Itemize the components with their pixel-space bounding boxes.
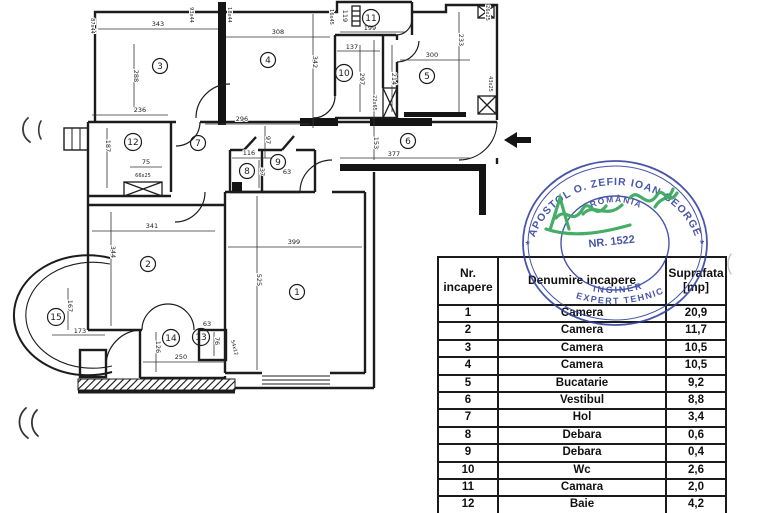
table-row: 7Hol3,4	[438, 409, 726, 426]
dimension-label: 63	[283, 168, 291, 176]
room-number-label: 14	[163, 330, 180, 347]
svg-text:10: 10	[338, 69, 350, 79]
room-area-cell: 10,5	[666, 340, 726, 357]
dimension-label: 187	[104, 140, 112, 152]
room-area-cell: 8,8	[666, 392, 726, 409]
room-number-label: 9	[271, 155, 286, 170]
room-number-label: 8	[240, 164, 255, 179]
table-header-row: Nr. incapere Denumire incapere Suprafata…	[438, 257, 726, 305]
dimension-label: 308	[272, 28, 284, 36]
room-number-label: 3	[153, 59, 168, 74]
scanned-floorplan-page: Nr. incapere Denumire incapere Suprafata…	[0, 0, 770, 513]
room-number-cell: 2	[438, 322, 498, 339]
dimension-label: 54x12	[229, 339, 239, 356]
room-number-cell: 5	[438, 375, 498, 392]
header-suprafata-line2: [mp]	[683, 280, 709, 294]
table-row: 1Camera20,9	[438, 305, 726, 322]
svg-text:11: 11	[365, 14, 376, 24]
svg-text:13: 13	[195, 333, 206, 343]
room-number-label: 10	[336, 65, 353, 82]
room-number-label: 11	[363, 10, 380, 27]
svg-text:2: 2	[145, 260, 151, 270]
room-number-label: 4	[261, 53, 276, 68]
room-number-cell: 11	[438, 479, 498, 496]
room-name-cell: Wc	[498, 462, 666, 479]
room-number-cell: 10	[438, 462, 498, 479]
room-area-cell: 11,7	[666, 322, 726, 339]
room-area-cell: 2,0	[666, 479, 726, 496]
room-table-body: 1Camera20,92Camera11,73Camera10,54Camera…	[438, 305, 726, 513]
stamp-number-text: NR. 1522	[588, 234, 635, 251]
header-nr-line2: incapere	[443, 280, 492, 294]
room-number-cell: 12	[438, 496, 498, 513]
plan-dimension-lines	[52, 12, 470, 372]
room-number-cell: 4	[438, 357, 498, 374]
table-row: 11Camara2,0	[438, 479, 726, 496]
header-denumire: Denumire incapere	[498, 257, 666, 305]
room-area-cell: 4,2	[666, 496, 726, 513]
room-number-cell: 7	[438, 409, 498, 426]
room-area-cell: 0,6	[666, 427, 726, 444]
dimension-label: 119	[341, 10, 349, 22]
room-area-table: Nr. incapere Denumire incapere Suprafata…	[437, 256, 727, 513]
header-suprafata: Suprafata [mp]	[666, 257, 726, 305]
room-number-cell: 1	[438, 305, 498, 322]
header-nr-incapere: Nr. incapere	[438, 257, 498, 305]
dimension-label: 87x44	[89, 18, 95, 34]
stamp-ring-text: * APOSTOL O. ZEFIR IOAN GEORGE *	[524, 176, 707, 247]
room-area-cell: 0,4	[666, 444, 726, 461]
header-denumire-label: Denumire incapere	[528, 273, 636, 287]
dimension-label: 297	[358, 73, 366, 85]
room-name-cell: Camera	[498, 305, 666, 322]
header-nr-line1: Nr.	[460, 266, 476, 280]
svg-text:3: 3	[157, 62, 163, 72]
dimension-label: 399	[288, 238, 300, 246]
dimension-label: 300	[426, 51, 438, 59]
dimension-label: 37	[258, 168, 266, 176]
room-name-cell: Camera	[498, 340, 666, 357]
dimension-label: 233	[457, 34, 465, 46]
table-row: 6Vestibul8,8	[438, 392, 726, 409]
dimension-label: 214	[390, 73, 398, 85]
room-number-label: 6	[401, 134, 416, 149]
room-area-cell: 20,9	[666, 305, 726, 322]
dimension-label: 18x44	[226, 7, 232, 23]
entrance-arrow-icon	[504, 132, 531, 148]
table-row: 9Debara0,4	[438, 444, 726, 461]
room-number-label: 12	[125, 134, 142, 151]
stamp-country-text: ROMÂNIA	[588, 193, 644, 210]
svg-text:12: 12	[127, 138, 138, 148]
dimension-label: 288	[132, 70, 140, 82]
dimension-label: 173	[74, 327, 86, 335]
table-row: 4Camera10,5	[438, 357, 726, 374]
svg-text:8: 8	[244, 167, 250, 177]
svg-text:14: 14	[165, 334, 177, 344]
plan-dimension-labels: 34330828887x4493x4418x4416x4511919913734…	[66, 5, 493, 361]
header-suprafata-line1: Suprafata	[668, 266, 723, 280]
dimension-label: 116	[243, 149, 255, 157]
dimension-label: 341	[146, 222, 158, 230]
svg-text:* APOSTOL O. ZEFIR IOAN GEORGE: * APOSTOL O. ZEFIR IOAN GEORGE *	[524, 176, 707, 247]
room-number-cell: 6	[438, 392, 498, 409]
room-area-cell: 3,4	[666, 409, 726, 426]
dimension-label: 377	[388, 150, 400, 158]
room-number-label: 2	[141, 257, 156, 272]
dimension-label: 93x44	[188, 7, 194, 23]
svg-text:15: 15	[50, 313, 61, 323]
svg-text:7: 7	[195, 139, 201, 149]
room-number-cell: 3	[438, 340, 498, 357]
dimension-label: 342	[311, 56, 319, 68]
svg-text:9: 9	[275, 158, 281, 168]
dimension-label: 167	[66, 300, 74, 312]
room-area-cell: 9,2	[666, 375, 726, 392]
dimension-label: 63	[203, 320, 211, 328]
dimension-label: 236	[134, 106, 146, 114]
svg-text:4: 4	[265, 56, 271, 66]
room-name-cell: Debara	[498, 444, 666, 461]
dimension-label: 43x25	[487, 76, 493, 92]
room-name-cell: Debara	[498, 427, 666, 444]
room-area-cell: 2,6	[666, 462, 726, 479]
room-number-label: 1	[290, 285, 305, 300]
svg-text:1: 1	[294, 288, 300, 298]
table-row: 8Debara0,6	[438, 427, 726, 444]
room-name-cell: Hol	[498, 409, 666, 426]
dimension-label: 344	[109, 246, 117, 258]
plan-room-number-labels: 123456789101112131415	[48, 10, 435, 347]
dimension-label: 250	[175, 353, 187, 361]
dimension-label: 153	[372, 137, 380, 149]
room-number-label: 15	[48, 309, 65, 326]
plan-walls	[14, 2, 497, 388]
dimension-label: 525	[255, 274, 263, 286]
room-area-cell: 10,5	[666, 357, 726, 374]
room-name-cell: Camera	[498, 322, 666, 339]
room-number-label: 7	[191, 136, 206, 151]
dimension-label: 126	[154, 341, 162, 353]
plan-solid-walls	[218, 2, 486, 215]
table-row: 3Camera10,5	[438, 340, 726, 357]
svg-text:6: 6	[405, 137, 411, 147]
room-number-label: 5	[420, 69, 435, 84]
room-number-label: 13	[193, 329, 210, 346]
table-row: 12Baie4,2	[438, 496, 726, 513]
dimension-label: 66x25	[135, 173, 151, 179]
room-name-cell: Vestibul	[498, 392, 666, 409]
dimension-label: 75	[142, 158, 150, 166]
dimension-label: 137	[346, 43, 358, 51]
dimension-label: 26x25	[484, 5, 490, 21]
dimension-label: 22x65	[371, 95, 377, 111]
room-number-cell: 9	[438, 444, 498, 461]
room-name-cell: Camera	[498, 357, 666, 374]
svg-text:5: 5	[424, 72, 430, 82]
dimension-label: 16x45	[328, 9, 334, 25]
room-name-cell: Baie	[498, 496, 666, 513]
table-row: 5Bucatarie9,2	[438, 375, 726, 392]
room-number-cell: 8	[438, 427, 498, 444]
room-name-cell: Camara	[498, 479, 666, 496]
signature	[546, 189, 677, 234]
svg-text:ROMÂNIA: ROMÂNIA	[588, 193, 644, 210]
dimension-label: 76	[213, 337, 221, 345]
table-row: 2Camera11,7	[438, 322, 726, 339]
dimension-label: 296	[236, 115, 248, 123]
dimension-label: 199	[364, 24, 376, 32]
table-row: 10Wc2,6	[438, 462, 726, 479]
dimension-label: 97	[264, 136, 272, 144]
room-name-cell: Bucatarie	[498, 375, 666, 392]
plan-windows-and-shafts	[64, 6, 496, 392]
dimension-label: 343	[152, 20, 164, 28]
